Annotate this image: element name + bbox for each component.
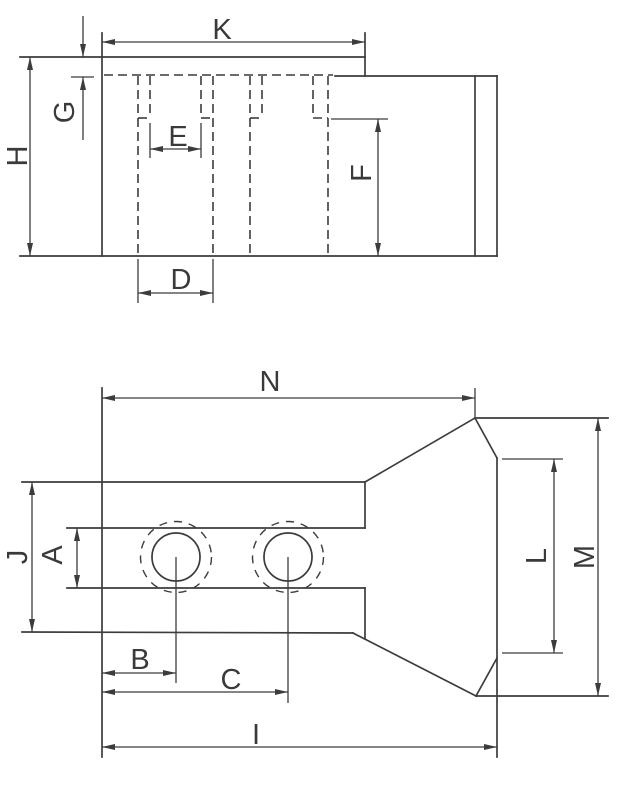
dim-label-m: M xyxy=(569,545,601,569)
dim-label-g: G xyxy=(49,101,81,124)
dim-label-e: E xyxy=(168,121,187,153)
drawing-canvas: K H G E D F xyxy=(0,0,630,789)
dimension-F: F xyxy=(331,119,388,256)
dimension-K: K xyxy=(102,14,365,46)
dimension-B: B xyxy=(102,644,176,676)
dim-label-l: L xyxy=(521,548,553,564)
dim-label-h: H xyxy=(2,146,34,167)
dimension-I: I xyxy=(102,719,497,751)
side-view: K H G E D F xyxy=(2,14,497,303)
dimension-D: D xyxy=(138,259,213,303)
dim-label-i: I xyxy=(252,719,260,751)
mounting-hole-1 xyxy=(141,522,212,684)
dimension-G: G xyxy=(49,16,94,140)
dim-label-n: N xyxy=(260,366,281,398)
plan-view: N J A L M B C I xyxy=(2,366,608,757)
mounting-hole-2 xyxy=(253,522,324,704)
dimension-A: A xyxy=(37,528,77,588)
dim-label-k: K xyxy=(212,14,232,46)
dimension-M: M xyxy=(569,418,601,696)
plan-view-outline xyxy=(22,388,608,757)
dimension-E: E xyxy=(150,121,201,158)
dimension-L: L xyxy=(502,459,563,653)
dimension-H: H xyxy=(2,57,34,256)
dim-label-j: J xyxy=(2,550,34,565)
dim-label-a: A xyxy=(37,545,69,565)
dimension-N: N xyxy=(102,366,475,418)
dimension-J: J xyxy=(2,482,34,632)
side-view-hidden-lines xyxy=(104,75,333,256)
dim-label-d: D xyxy=(171,264,192,296)
technical-drawing-page: K H G E D F xyxy=(0,0,630,789)
dim-label-c: C xyxy=(221,664,242,696)
dim-label-b: B xyxy=(130,644,149,676)
dim-label-f: F xyxy=(346,164,378,182)
side-view-outline xyxy=(20,33,497,256)
